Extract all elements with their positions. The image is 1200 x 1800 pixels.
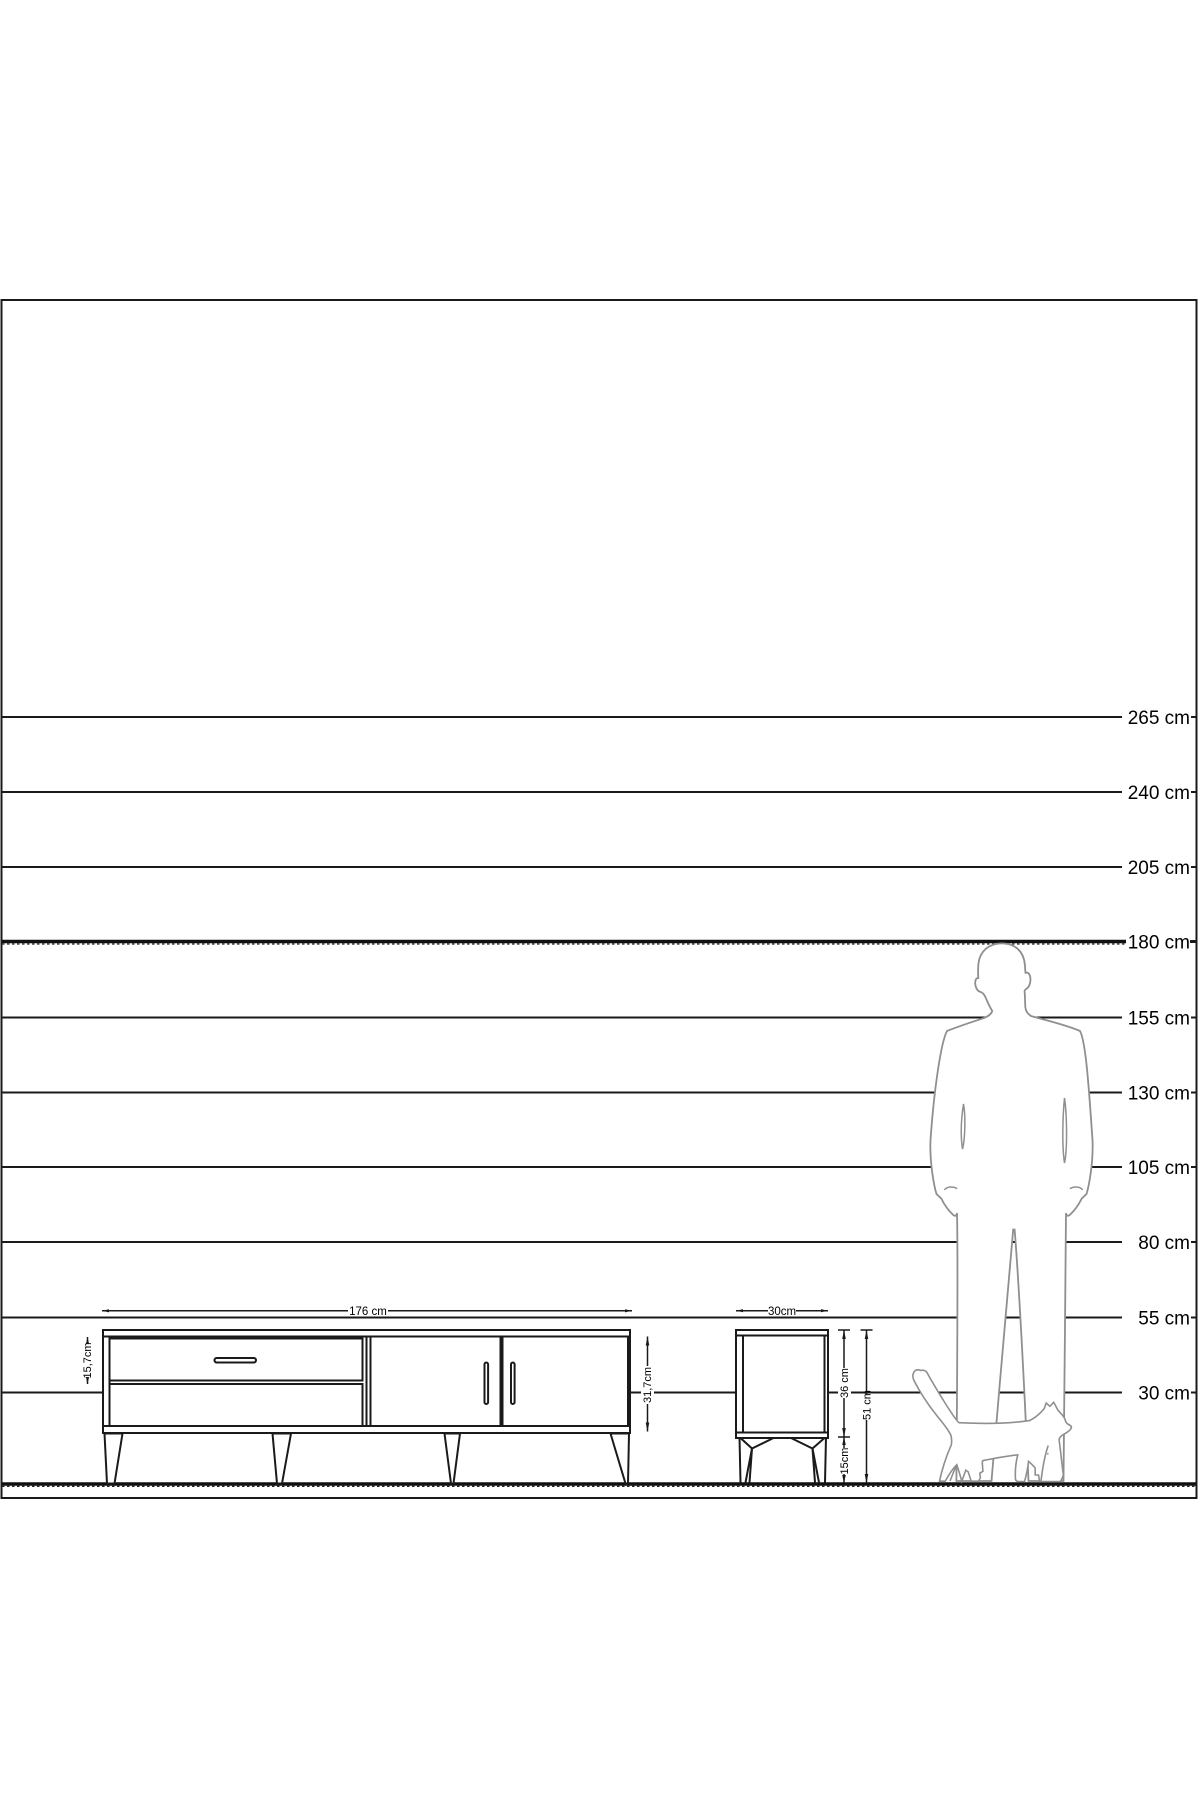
svg-text:30 cm: 30 cm xyxy=(1138,1384,1190,1405)
svg-text:176 cm: 176 cm xyxy=(349,1306,387,1318)
svg-text:240 cm: 240 cm xyxy=(1128,783,1190,804)
svg-text:130 cm: 130 cm xyxy=(1128,1084,1190,1105)
svg-text:155 cm: 155 cm xyxy=(1128,1009,1190,1030)
svg-text:36 cm: 36 cm xyxy=(839,1368,851,1398)
svg-text:51 cm: 51 cm xyxy=(862,1390,874,1420)
svg-text:15cm: 15cm xyxy=(839,1448,851,1475)
svg-text:105 cm: 105 cm xyxy=(1128,1158,1190,1179)
svg-text:55 cm: 55 cm xyxy=(1138,1309,1190,1330)
svg-text:31,7cm: 31,7cm xyxy=(642,1367,654,1403)
svg-text:205 cm: 205 cm xyxy=(1128,858,1190,879)
svg-text:30cm: 30cm xyxy=(768,1306,796,1318)
svg-text:180 cm: 180 cm xyxy=(1128,933,1190,954)
svg-text:265 cm: 265 cm xyxy=(1128,708,1190,729)
svg-text:15,7cm: 15,7cm xyxy=(82,1342,94,1378)
svg-text:80 cm: 80 cm xyxy=(1138,1233,1190,1254)
